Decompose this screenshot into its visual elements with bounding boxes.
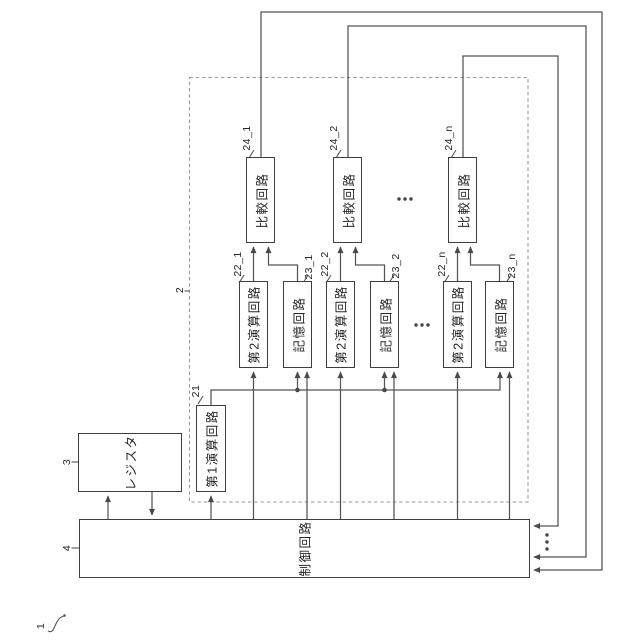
ref-label-23_n: 23_n xyxy=(506,253,518,278)
ref-label-23_2: 23_2 xyxy=(390,253,402,278)
first-arithmetic-label: 第1演算回路 xyxy=(202,409,221,487)
second-arithmetic-2-box: 第2演算回路 xyxy=(326,281,355,368)
wire-mem1-to-cmp1 xyxy=(269,247,298,281)
memory-circuit-n-label: 記憶回路 xyxy=(490,296,509,352)
memory-circuit-2-label: 記憶回路 xyxy=(375,296,394,352)
leader-1-squiggle xyxy=(48,616,64,632)
control-circuit-label: 制御回路 xyxy=(295,520,314,576)
ref-label-22_n: 22_n xyxy=(436,251,448,276)
comparison-circuit-1-label: 比較回路 xyxy=(251,172,270,228)
junction-dot xyxy=(382,388,387,393)
ref-label-24_n: 24_n xyxy=(443,125,455,150)
patent-figure-canvas: 比較回路 比較回路 比較回路 第2演算回路 記憶回路 第2演算回路 記憶回路 第… xyxy=(0,0,640,640)
ellipsis-feedback-lines xyxy=(545,533,548,550)
ref-label-21: 21 xyxy=(190,385,202,398)
comparison-circuit-1-box: 比較回路 xyxy=(246,157,275,243)
register-box: レジスタ xyxy=(78,433,182,492)
junction-dot xyxy=(295,388,300,393)
ref-label-22_1: 22_1 xyxy=(232,251,244,276)
ellipsis-cmp-row xyxy=(397,197,412,200)
ref-label-1: 1 xyxy=(35,623,47,629)
memory-circuit-n-box: 記憶回路 xyxy=(485,281,514,368)
comparison-circuit-2-label: 比較回路 xyxy=(338,172,357,228)
leader-1-tip xyxy=(63,614,66,617)
memory-circuit-2-box: 記憶回路 xyxy=(370,281,399,368)
wire-cmp1-feedback xyxy=(261,12,602,570)
control-circuit-box: 制御回路 xyxy=(79,519,530,578)
second-arithmetic-n-label: 第2演算回路 xyxy=(448,285,467,363)
memory-circuit-1-label: 記憶回路 xyxy=(288,296,307,352)
comparison-circuit-2-box: 比較回路 xyxy=(333,157,362,243)
ref-label-22_2: 22_2 xyxy=(319,251,331,276)
second-arithmetic-1-label: 第2演算回路 xyxy=(244,285,263,363)
register-label: レジスタ xyxy=(120,434,139,490)
second-arithmetic-1-box: 第2演算回路 xyxy=(239,281,268,368)
ref-label-3: 3 xyxy=(61,459,73,465)
second-arithmetic-2-label: 第2演算回路 xyxy=(331,285,350,363)
wire-memn-to-cmpn xyxy=(471,247,500,281)
comparison-circuit-n-label: 比較回路 xyxy=(453,172,472,228)
second-arithmetic-n-box: 第2演算回路 xyxy=(443,281,472,368)
memory-circuit-1-box: 記憶回路 xyxy=(283,281,312,368)
ref-label-24_1: 24_1 xyxy=(241,125,253,150)
ellipsis-unit-row xyxy=(414,323,429,326)
ref-label-24_2: 24_2 xyxy=(328,125,340,150)
ref-label-23_1: 23_1 xyxy=(303,254,315,279)
ref-label-2: 2 xyxy=(174,287,186,293)
wire-op1-bus xyxy=(211,372,500,405)
ref-label-4: 4 xyxy=(61,545,73,551)
comparison-circuit-n-box: 比較回路 xyxy=(448,157,477,243)
wire-mem2-to-cmp2 xyxy=(356,247,385,281)
first-arithmetic-box: 第1演算回路 xyxy=(196,405,226,492)
